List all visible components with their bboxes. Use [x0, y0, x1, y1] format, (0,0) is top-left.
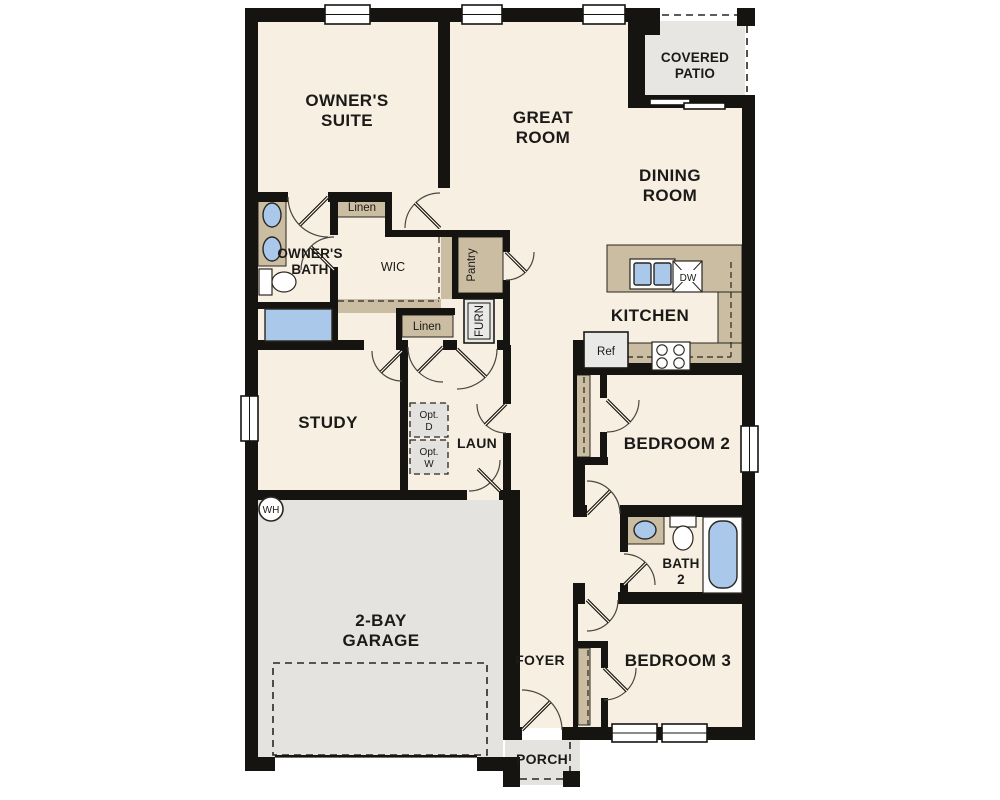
- wall-left: [245, 8, 258, 771]
- label-bedroom-2: BEDROOM 2: [624, 434, 731, 453]
- wall-suite-bottom-b: [328, 192, 390, 202]
- label-great-room-1: GREAT: [513, 108, 573, 127]
- label-owners-bath-1: OWNER'S: [277, 246, 342, 261]
- porch-post-left: [503, 771, 520, 787]
- label-wic: WIC: [381, 260, 405, 274]
- label-opt-dryer-2: D: [425, 422, 432, 433]
- bath2-toilet-tank: [670, 516, 696, 527]
- label-porch: PORCH: [516, 751, 568, 767]
- floor-plan-page: OWNER'S SUITE GREAT ROOM COVERED PATIO D…: [0, 0, 1000, 800]
- wall-linen-lower-top: [396, 308, 455, 315]
- label-kitchen: KITCHEN: [611, 306, 689, 325]
- wall-bedroom2-bottom-b: [620, 505, 742, 517]
- label-owners-suite-1: OWNER'S: [305, 91, 388, 110]
- label-furnace: FURN: [474, 305, 486, 337]
- owners-toilet-tank: [259, 269, 272, 295]
- wall-pantry-bottom: [452, 293, 510, 299]
- label-linen-upper: Linen: [348, 202, 376, 214]
- kitchen-sink-basin-2: [654, 263, 671, 285]
- wall-patio-left: [628, 35, 645, 95]
- wall-laundry-right-a: [503, 345, 511, 404]
- wall-tub-top: [258, 302, 332, 309]
- label-bath-2-2: 2: [677, 572, 685, 587]
- label-foyer: FOYER: [515, 652, 565, 668]
- label-owners-bath-2: BATH: [291, 262, 328, 277]
- owners-tub: [265, 309, 332, 341]
- wall-pantry-right-b: [503, 280, 510, 345]
- window-bedroom3-a: [612, 724, 657, 742]
- wall-bedroom3-top: [618, 592, 742, 604]
- label-study: STUDY: [298, 413, 358, 432]
- window-bedroom2: [741, 426, 758, 472]
- wall-hall-b: [443, 340, 457, 350]
- wall-foyer-bottom-b: [562, 727, 573, 740]
- owners-bath-sink-1: [263, 203, 281, 227]
- window-great-room: [462, 5, 502, 24]
- wall-suite-bottom-a: [258, 192, 288, 202]
- kitchen-sink-basin-1: [634, 263, 651, 285]
- wall-bedroom3-closet-front-a: [601, 641, 608, 668]
- wall-bedroom2-bottom-a: [573, 505, 587, 517]
- bath2-sink: [634, 521, 656, 539]
- wall-top: [245, 8, 628, 22]
- label-opt-washer-1: Opt.: [420, 447, 439, 458]
- label-dishwasher: DW: [680, 273, 697, 284]
- wall-patio-post: [737, 8, 755, 26]
- porch-post-right: [563, 771, 580, 787]
- window-dining: [583, 5, 625, 24]
- wall-bath2-left-a: [620, 517, 628, 552]
- label-water-heater: WH: [263, 505, 280, 516]
- bath2-toilet-bowl: [673, 526, 693, 550]
- garage-door-line: [275, 755, 477, 758]
- window-bedroom3-b: [662, 724, 707, 742]
- wall-patio-corner: [628, 8, 660, 35]
- label-opt-washer-2: W: [424, 459, 434, 470]
- label-laundry: LAUN: [457, 435, 497, 451]
- wall-foyer-bedroom3: [573, 604, 578, 727]
- range-stove: [652, 342, 690, 370]
- wall-laundry-left: [400, 340, 408, 490]
- label-linen-lower: Linen: [413, 321, 441, 333]
- wall-garage-right: [503, 490, 520, 740]
- label-covered-patio-2: PATIO: [675, 66, 715, 81]
- label-dining-room-2: ROOM: [643, 186, 697, 205]
- label-covered-patio-1: COVERED: [661, 50, 729, 65]
- label-garage-1: 2-BAY: [355, 611, 407, 630]
- label-dining-room-1: DINING: [639, 166, 701, 185]
- label-bath-2-1: BATH: [662, 556, 699, 571]
- wall-garage-stub-right: [477, 757, 520, 771]
- floor-areas: [258, 21, 745, 785]
- wall-right: [742, 95, 755, 740]
- bedroom2-closet: [576, 375, 590, 457]
- pantry-closet: [458, 237, 503, 293]
- label-opt-dryer-1: Opt.: [420, 410, 439, 421]
- wall-pantry-right-a: [503, 237, 510, 252]
- wall-suite-greatroom: [438, 8, 450, 188]
- window-study: [241, 396, 258, 441]
- wall-laundry-right-b: [503, 433, 511, 490]
- label-garage-2: GARAGE: [342, 631, 419, 650]
- wall-foyer-wing-b: [573, 583, 585, 604]
- wall-bedroom2-closet-front-b: [600, 432, 607, 458]
- wall-garage-stub-left: [245, 757, 275, 771]
- label-pantry: Pantry: [466, 248, 478, 281]
- wall-wic-pantry-divider: [452, 237, 458, 293]
- label-great-room-2: ROOM: [516, 128, 570, 147]
- label-owners-suite-2: SUITE: [321, 111, 373, 130]
- bath2-tub: [709, 521, 737, 588]
- wall-bedroom2-closet-front-a: [600, 375, 607, 398]
- wall-wic-pantry-top: [385, 230, 510, 237]
- wic-shelf-right: [441, 237, 452, 299]
- label-bedroom-3: BEDROOM 3: [625, 651, 732, 670]
- label-refrigerator: Ref: [597, 346, 616, 358]
- wall-bath-wic-a: [330, 202, 338, 235]
- floor-plan-drawing: OWNER'S SUITE GREAT ROOM COVERED PATIO D…: [0, 0, 1000, 800]
- wall-bedroom3-closet-front-b: [601, 698, 608, 727]
- wall-bedroom2-closet-left: [573, 375, 577, 463]
- window-owners-suite: [325, 5, 370, 24]
